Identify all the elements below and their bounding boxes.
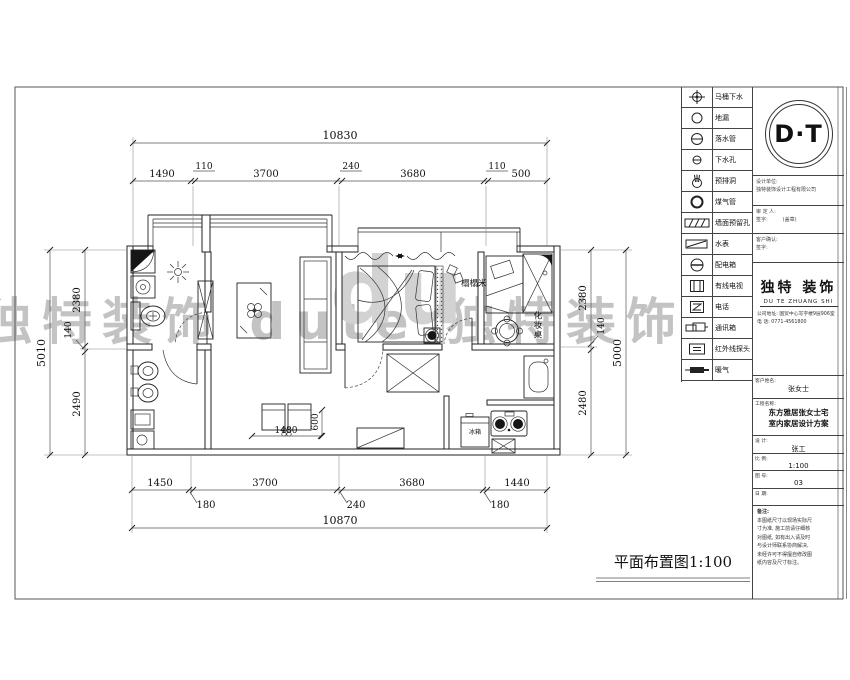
drawing-title: 平面布置图1:100 [597, 551, 749, 572]
plant-table [237, 283, 271, 338]
svg-text:2380: 2380 [72, 287, 83, 312]
svg-text:500: 500 [511, 169, 530, 180]
gas-stove [491, 411, 527, 436]
title-block-panel: D·T 设计单位: 独特装饰设计工程有限公司 审 定 人: 签字: (盖章) 客… [752, 87, 843, 599]
svg-text:3680: 3680 [399, 478, 424, 489]
washing-machine [131, 276, 155, 298]
legend-row: 地漏 [682, 108, 752, 129]
legend-row: 落水管 [682, 129, 752, 150]
sheet-no-row: 图 号: 03 [753, 470, 844, 488]
double-bed [358, 266, 435, 342]
legend-row: 水表 [682, 234, 752, 255]
dim-right-overall: 5000 [611, 339, 624, 367]
cable-tv-icon [682, 276, 713, 296]
svg-text:3680: 3680 [400, 169, 425, 180]
dimensions-bottom: 1450 180 3700 240 3680 180 1440 10870 [129, 455, 550, 533]
laundry-fixtures [131, 362, 158, 449]
company-address: 公司地址: 国贸中心写字楼9层906室 电 话: 0771-4561800 [753, 307, 844, 327]
legend-row: 马桶下水 [682, 87, 752, 108]
wardrobe2 [523, 254, 552, 313]
wardrobe-cabinet [300, 257, 331, 373]
scale-value: 1:100 [753, 462, 844, 470]
svg-text:140: 140 [597, 317, 607, 334]
svg-text:110: 110 [488, 162, 505, 172]
water-meter-icon [682, 234, 713, 254]
vent-hole-icon [682, 171, 713, 191]
washbasin [524, 356, 554, 398]
dim-sofa-width: 1480 [275, 426, 298, 436]
company-logo: D·T [753, 93, 844, 175]
designer-row: 设 计: 张工 [753, 435, 844, 453]
legend-row: 电话 [682, 297, 752, 318]
legend-row: 配电箱 [682, 255, 752, 276]
fridge-label: 冰箱 [461, 427, 489, 436]
info-row-1: 设计单位: 独特装饰设计工程有限公司 [753, 175, 844, 205]
legend-row: 墙面预留孔 [682, 213, 752, 234]
dim-left-overall: 5010 [35, 339, 48, 367]
tatami-room-door-arc [444, 318, 472, 344]
legend-row: 煤气管 [682, 192, 752, 213]
ceiling-light [167, 261, 189, 283]
dresser-label: 化妆桌 [531, 311, 543, 340]
legend-row: 通讯箱 [682, 318, 752, 339]
legend-row: 下水孔 [682, 150, 752, 171]
ir-sensor-icon [682, 339, 713, 359]
svg-text:3700: 3700 [252, 478, 277, 489]
toilet [131, 302, 165, 330]
comm-box-icon [682, 318, 713, 338]
svg-text:140: 140 [64, 321, 74, 338]
dresser-stool [492, 316, 523, 346]
dim-sofa-depth: 600 [311, 413, 321, 430]
company-name: 独特 装饰 [753, 277, 844, 297]
svg-text:240: 240 [346, 500, 365, 511]
dimensions-interior: 1480 600 [249, 407, 325, 439]
tatami-label: 榻榻米 [461, 277, 487, 289]
company-pinyin: DU TE ZHUANG SHI [760, 299, 838, 307]
scale-row: 比 例: 1:100 [753, 453, 844, 470]
info-row-2: 审 定 人: 签字: (盖章) [753, 205, 844, 233]
svg-text:2490: 2490 [72, 391, 83, 416]
wall-hole-icon [682, 213, 713, 233]
project-name: 东方雅居张女士宅 室内家居设计方案 [753, 407, 844, 430]
svg-text:2380: 2380 [578, 285, 589, 310]
telephone-icon [682, 297, 713, 317]
svg-text:1490: 1490 [149, 169, 174, 180]
svg-text:1440: 1440 [504, 478, 529, 489]
gas-pipe-icon [682, 192, 713, 212]
logo-text: D·T [774, 120, 822, 148]
dim-top-overall: 10830 [323, 129, 358, 142]
svg-text:180: 180 [490, 500, 509, 511]
svg-text:2480: 2480 [578, 390, 589, 415]
svg-text:1450: 1450 [147, 478, 172, 489]
laundry-door-arc [163, 350, 197, 384]
title-underline [596, 578, 750, 582]
info-row-3: 客户确认: 签字: [753, 233, 844, 262]
tatami-icon [447, 265, 458, 276]
bedroom1-furniture [345, 253, 455, 393]
floor-drain-icon [682, 108, 713, 128]
drain-hole-icon [682, 150, 713, 170]
svg-text:240: 240 [342, 162, 359, 172]
dim-bottom-overall: 10870 [323, 514, 358, 527]
toilet-drain-icon [682, 87, 713, 107]
company-block: 独特 装饰 DU TE ZHUANG SHI 公司地址: 国贸中心写字楼9层90… [753, 262, 844, 375]
legend-row: 红外线探头 [682, 339, 752, 360]
single-bed [486, 256, 523, 313]
heater-icon [682, 360, 713, 380]
curtain-left [345, 253, 393, 260]
curtain-right [407, 253, 455, 260]
tv-cabinet [357, 428, 404, 448]
legend-row: 暖气 [682, 360, 752, 381]
bathroom-fixtures [131, 250, 213, 339]
svg-text:3700: 3700 [253, 169, 278, 180]
power-box-icon [682, 255, 713, 275]
notes-block: 备注: 本图纸尺寸以现场实际尺 寸为准, 施工前请仔细核 对图纸, 如有出入请及… [753, 505, 844, 599]
project-row: 工程名称: 东方雅居张女士宅 室内家居设计方案 [753, 398, 844, 435]
client-row: 客户姓名: 张女士 [753, 375, 844, 398]
svg-text:110: 110 [195, 162, 212, 172]
legend-table: 马桶下水 地漏 落水管 下水孔 预排洞 煤气管 [681, 87, 752, 382]
drawing-sheet: 独特装饰 dute 独特装饰 du [0, 0, 850, 680]
legend-row: 预排洞 [682, 171, 752, 192]
bed-runner-hatch [436, 266, 443, 342]
dimensions-right: 2380 140 2480 5000 [560, 247, 632, 458]
bedroom-door-arc [345, 350, 383, 388]
downpipe-icon [682, 129, 713, 149]
legend-row: 有线电视 [682, 276, 752, 297]
date-row: 日 期: [753, 488, 844, 505]
dimensions-left: 2380 140 2490 5010 [35, 247, 127, 458]
svg-text:180: 180 [196, 500, 215, 511]
dining-table [387, 354, 439, 392]
